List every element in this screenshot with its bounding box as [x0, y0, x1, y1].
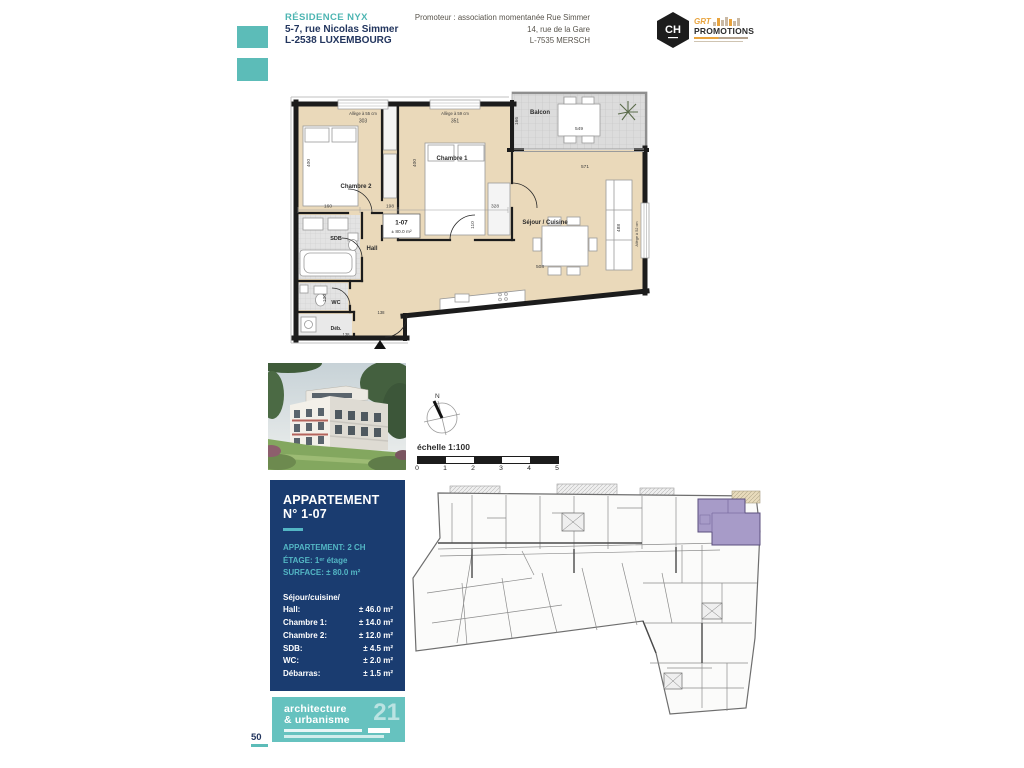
info-title-line-1: APPARTEMENT [283, 493, 393, 507]
scale-tick-0: 0 [412, 465, 422, 472]
deb-fixtures [301, 317, 316, 332]
promoter-info: Promoteur : association momentanée Rue S… [400, 12, 590, 47]
dim-deb-width: 138 [343, 332, 351, 337]
skyline-icon [713, 16, 741, 26]
room-row-chambre2: Chambre 2:± 12.0 m² [283, 630, 393, 643]
grt-logo-subline [694, 41, 743, 43]
dim-chambre2-depth: 400 [306, 159, 312, 167]
teal-square-top [237, 26, 268, 48]
room-row-sdb: SDB:± 4.5 m² [283, 643, 393, 656]
dim-sejour-depth: 488 [616, 224, 622, 232]
room-row-chambre1: Chambre 1:± 14.0 m² [283, 617, 393, 630]
room-row-hall: Hall:± 46.0 m² [283, 604, 393, 617]
dim-hall-width: 198 [386, 204, 394, 210]
spec-floor-value: 1ᵉʳ étage [315, 556, 348, 565]
dim-wc-depth: 100 [322, 294, 328, 302]
spec-floor-label: ÉTAGE: [283, 556, 313, 565]
scale-label: échelle 1:100 [417, 442, 470, 452]
architecture-urbanisme-logo: architecture & urbanisme 21 [272, 697, 405, 742]
room-label-deb: Déb. [331, 326, 342, 332]
ch-logo: CH [656, 11, 690, 49]
residence-name: RÉSIDENCE NYX [285, 12, 398, 24]
spec-surface-label: SURFACE: [283, 568, 324, 577]
room-label-chambre2: Chambre 2 [340, 184, 372, 190]
au-logo-number: 21 [373, 700, 400, 726]
annotation-allege-55: Allège à 55 cm [349, 111, 377, 116]
page-number: 50 [251, 732, 262, 743]
grt-logo: GRT PROMOTIONS [694, 16, 748, 42]
dim-sejour-width: 571 [581, 164, 589, 170]
ch-logo-text: CH [665, 24, 681, 36]
scale-tick-5: 5 [552, 465, 562, 472]
dim-balcon-width: 549 [575, 126, 583, 132]
info-title-line-2: N° 1-07 [283, 507, 393, 521]
grt-logo-bottom-text: PROMOTIONS [694, 26, 748, 36]
entrance-marker-icon [374, 340, 386, 349]
scale-tick-1: 1 [440, 465, 450, 472]
room-label-hall: Hall [366, 246, 377, 252]
dim-hall-door: 138 [378, 310, 386, 315]
promoter-line-1: Promoteur : association momentanée Rue S… [400, 12, 590, 24]
grt-logo-bar [694, 37, 748, 39]
grt-logo-top-text: GRT [694, 18, 711, 26]
room-row-debarras: Débarras:± 1.5 m² [283, 668, 393, 681]
spec-surface: SURFACE: ± 80.0 m² [283, 567, 393, 580]
au-address-bar [284, 735, 384, 738]
balcony-table [558, 97, 600, 143]
dim-dining-width: 508 [536, 264, 544, 270]
ch-logo-rule [668, 37, 678, 38]
scale-tick-4: 4 [524, 465, 534, 472]
dim-chambre2-width: 303 [359, 119, 368, 125]
scale-tick-2: 2 [468, 465, 478, 472]
page-number-underline [251, 744, 268, 747]
building-photo [268, 363, 406, 470]
spec-apartment: APPARTEMENT: 2 CH [283, 542, 393, 555]
unit-id-label: 1-07 [395, 220, 408, 227]
closet-strip-top [384, 106, 397, 150]
unit-area-label: ± 80.0 m² [391, 229, 412, 235]
compass: N [420, 390, 464, 438]
info-title-underline [283, 528, 303, 531]
room-label-sejour: Séjour / Cuisine [522, 220, 568, 226]
residence-address-1: 5-7, rue Nicolas Simmer [285, 24, 398, 36]
brochure-page: { "header": { "residence_name": "RÉSIDEN… [0, 0, 1024, 768]
dim-sejour-left: 328 [491, 204, 499, 210]
room-label-balcon: Balcon [530, 110, 550, 116]
room-label-wc: WC [331, 300, 340, 306]
room-row-sejour: Séjour/cuisine/ [283, 592, 393, 605]
dim-chambre1-depth: 400 [412, 159, 418, 167]
spec-floor: ÉTAGE: 1ᵉʳ étage [283, 555, 393, 568]
apartment-floor-plan: 1-07 ± 80.0 m² Chambre 2 Chambre 1 Balco… [290, 88, 650, 358]
key-plan [412, 483, 770, 730]
apartment-info-box: APPARTEMENT N° 1-07 APPARTEMENT: 2 CH ÉT… [270, 480, 405, 691]
room-label-chambre1: Chambre 1 [436, 156, 468, 162]
dim-balcon-depth: 166 [514, 117, 520, 125]
unit-label-box: 1-07 ± 80.0 m² [383, 214, 420, 238]
au-tagline-bar [284, 729, 362, 732]
promoter-line-3: L-7535 MERSCH [400, 35, 590, 47]
compass-north-label: N [435, 393, 440, 400]
dim-sdb-width: 160 [324, 204, 332, 210]
scale-tick-3: 3 [496, 465, 506, 472]
room-label-sdb: SDB [330, 236, 342, 242]
residence-address-2: L-2538 LUXEMBOURG [285, 35, 398, 47]
spec-apartment-label: APPARTEMENT: [283, 543, 345, 552]
teal-square-bottom [237, 58, 268, 81]
promoter-line-2: 14, rue de la Gare [400, 24, 590, 36]
dim-corridor: 110 [470, 221, 476, 229]
spec-surface-value: ± 80.0 m² [326, 568, 360, 577]
annotation-allege-52: Allège à 52 cm [635, 221, 639, 246]
spec-apartment-value: 2 CH [347, 543, 365, 552]
residence-info: RÉSIDENCE NYX 5-7, rue Nicolas Simmer L-… [285, 12, 398, 47]
dim-chambre1-width: 351 [451, 119, 460, 125]
room-surface-list: Séjour/cuisine/ Hall:± 46.0 m² Chambre 1… [283, 592, 393, 703]
closet-strip-bottom [384, 154, 397, 198]
annotation-allege-59: Allège à 59 cm [441, 111, 469, 116]
room-row-wc: WC:± 2.0 m² [283, 655, 393, 668]
scale-bar [417, 456, 559, 464]
